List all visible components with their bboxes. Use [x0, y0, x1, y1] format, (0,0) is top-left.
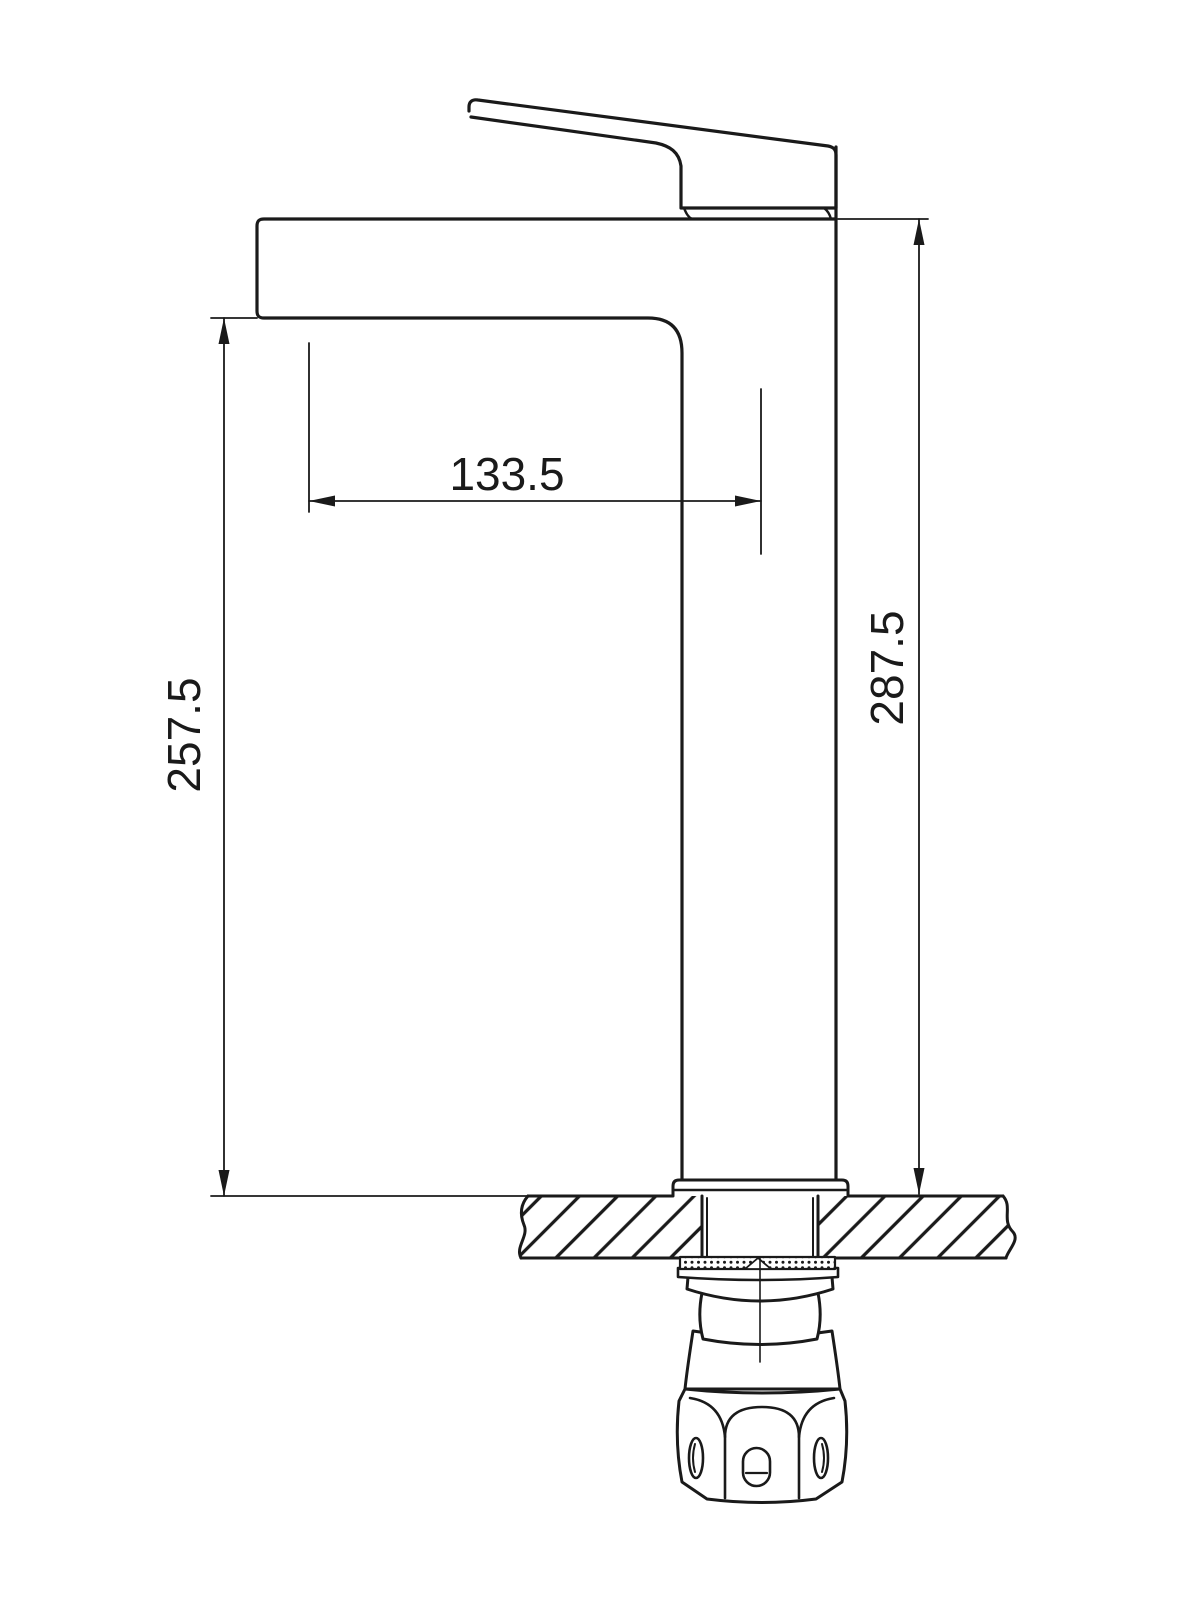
dim-spout-reach-arrow-left — [309, 496, 335, 507]
handle-base-foot-right — [824, 208, 831, 219]
dim-overall-height-arrow-bottom — [914, 1168, 925, 1194]
faucet-dimension-drawing: 133.5 257.5 287.5 — [0, 0, 1200, 1600]
dim-spout-reach-label: 133.5 — [449, 448, 564, 500]
dim-spout-height-label: 257.5 — [158, 677, 210, 792]
dim-overall-height-label: 287.5 — [861, 610, 913, 725]
base-flange — [673, 1180, 848, 1196]
dim-overall-height-arrow-top — [914, 219, 925, 245]
dim-spout-height-arrow-bottom — [219, 1170, 230, 1196]
faucet-body-outline — [257, 219, 836, 1180]
mounting-nut-slot-center — [743, 1448, 770, 1486]
dim-spout-height-arrow-top — [219, 318, 230, 344]
counter-hatch-left — [519, 1196, 702, 1258]
dim-spout-reach-arrow-right — [735, 496, 761, 507]
handle-lever-outline — [469, 100, 836, 208]
handle-base-foot-left — [684, 208, 692, 219]
technical-drawing-canvas: 133.5 257.5 287.5 — [0, 0, 1200, 1600]
counter-hatch-right — [818, 1196, 1015, 1258]
